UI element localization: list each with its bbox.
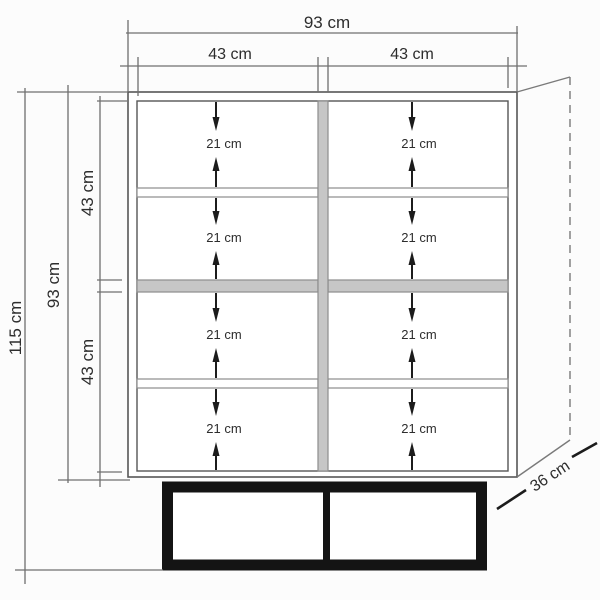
label-compartment-1-right: 21 cm [401,136,436,151]
base-stand [168,483,482,569]
label-depth: 36 cm [527,457,573,495]
label-height-lower: 43 cm [78,339,97,385]
depth-top-edge [517,77,570,92]
label-height-body: 93 cm [44,262,63,308]
label-width-total: 93 cm [304,13,350,32]
shelf-thin-right-2 [328,379,508,388]
center-divider [318,101,328,471]
depth-dim-segment [497,490,526,509]
depth-dim-segment [572,443,597,457]
label-compartment-1-left: 21 cm [206,136,241,151]
label-compartment-3-right: 21 cm [401,327,436,342]
diagram-canvas: 93 cm 43 cm 43 cm 115 cm 93 cm 43 cm 43 … [0,0,600,600]
dimension-diagram: 93 cm 43 cm 43 cm 115 cm 93 cm 43 cm 43 … [0,0,600,600]
label-compartment-3-left: 21 cm [206,327,241,342]
perspective-depth [517,77,570,477]
label-compartment-2-left: 21 cm [206,230,241,245]
label-width-left: 43 cm [208,46,252,63]
shelf-thin-left-2 [137,379,318,388]
shelf-thin-right-1 [328,188,508,197]
shelf-middle-left [137,280,318,292]
label-compartment-4-right: 21 cm [401,421,436,436]
label-compartment-4-left: 21 cm [206,421,241,436]
label-height-upper: 43 cm [78,170,97,216]
shelf-middle-right [328,280,508,292]
shelf-thin-left-1 [137,188,318,197]
label-width-right: 43 cm [390,46,434,63]
label-height-total: 115 cm [6,301,25,356]
label-compartment-2-right: 21 cm [401,230,436,245]
